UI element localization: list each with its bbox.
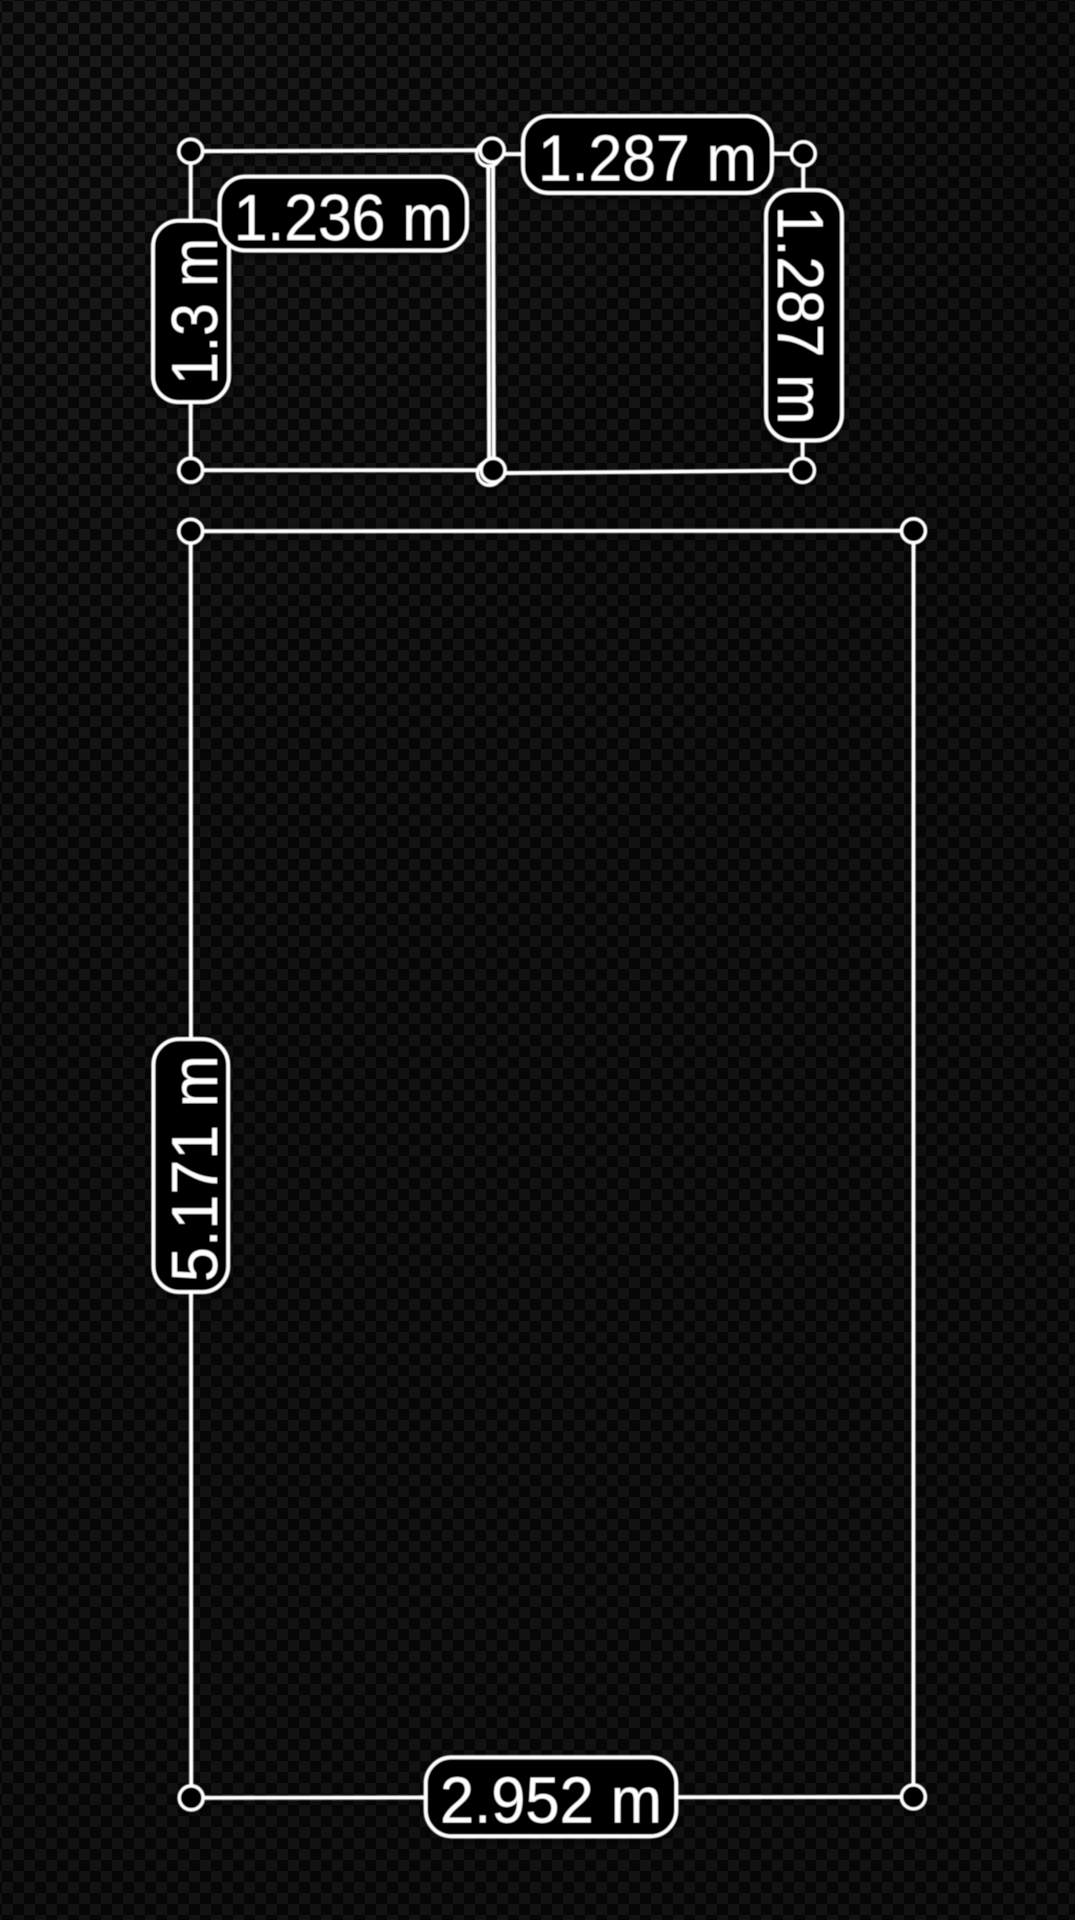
svg-text:1.287 m: 1.287 m — [538, 122, 757, 195]
svg-text:2.952 m: 2.952 m — [440, 1764, 662, 1837]
svg-text:5.171 m: 5.171 m — [158, 1055, 231, 1282]
svg-text:1.236 m: 1.236 m — [234, 181, 453, 254]
svg-text:1.3 m: 1.3 m — [158, 238, 231, 385]
svg-text:1.287 m: 1.287 m — [764, 206, 837, 425]
